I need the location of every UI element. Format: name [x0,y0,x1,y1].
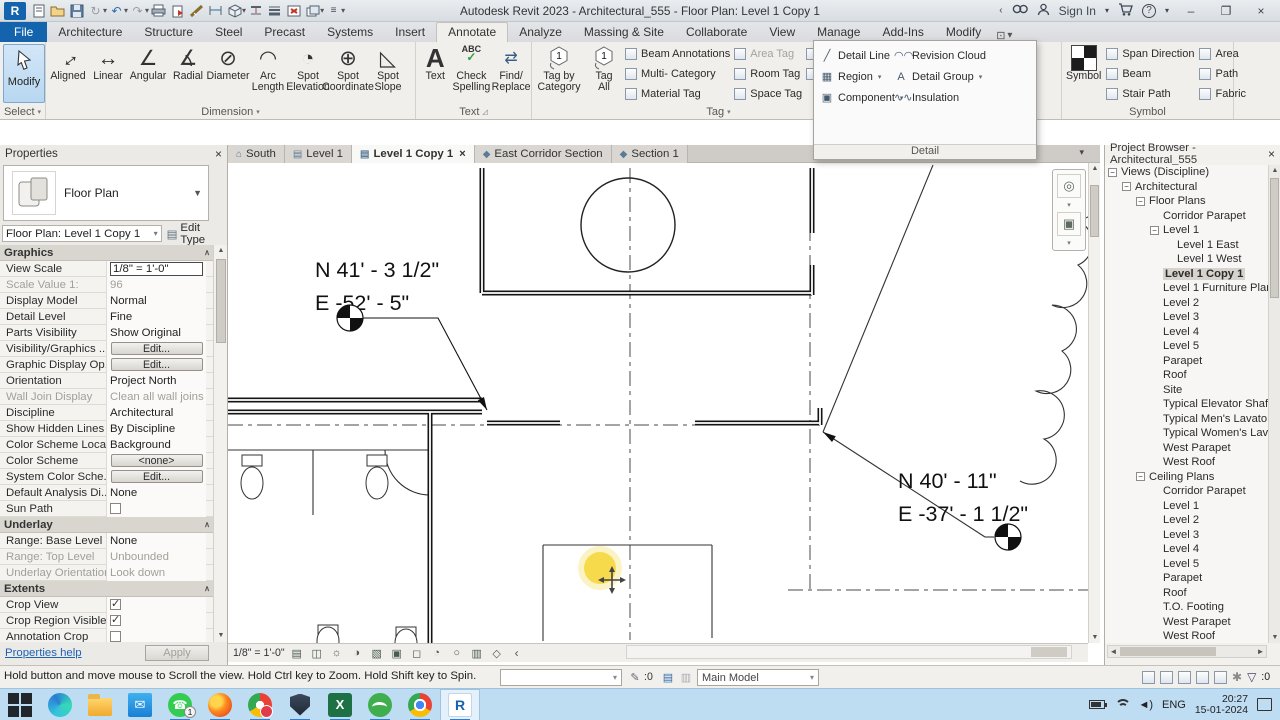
tab-massing-site[interactable]: Massing & Site [573,22,675,42]
symbol-tool-icon [1199,88,1211,100]
scroll-down-icon: ▼ [214,630,228,642]
ribbon-tab-row: File Architecture Structure Steel Precas… [0,22,1280,42]
text-panel: A Text ABC✓ CheckSpelling ⇄ Find/Replace… [416,42,532,119]
radial-dimension-tool[interactable]: ∡ Radial [168,42,208,104]
type-name: Floor Plan [64,186,119,200]
tool-icon: ⊘ [219,45,237,71]
tree-item[interactable]: Parapet [1105,571,1269,586]
tree-item[interactable]: Level 1 [1105,499,1269,514]
material-tag-tool[interactable]: Material Tag [625,84,730,104]
caret-down-icon[interactable]: ▾ [1067,239,1071,247]
project-browser: Project Browser - Architectural_555× − V… [1104,145,1280,665]
wifi-icon[interactable] [1114,699,1129,711]
design-option-selector[interactable]: Main Model▾ [697,669,819,686]
view-type-icon: ▤ [293,149,302,160]
floor-plan-type-icon [12,171,56,215]
caret-down-icon[interactable]: ▾ [979,73,983,81]
tree-item[interactable]: Level 4 [1105,325,1269,340]
floor-plan-drawing[interactable]: N 41' - 3 1/2" E -52' - 5" N 40' - 11" E… [228,163,1088,643]
detail-line-tool[interactable]: ╱ Detail Line [820,45,903,66]
scroll-right-icon: ► [1255,646,1266,657]
project-browser-title: Project Browser - Architectural_555 [1110,142,1268,166]
tree-item[interactable]: Level 5 [1105,339,1269,354]
mail-app[interactable]: ✉ [120,689,160,720]
select-underlay-icon[interactable] [1160,671,1173,684]
select-panel: Modify Select▾ [0,42,46,119]
sign-in-label[interactable]: Sign In [1059,4,1096,18]
expand-view-bar-icon[interactable]: ‹ [509,646,525,661]
properties-help-link[interactable]: Properties help [5,647,82,659]
type-selector[interactable]: Floor Plan ▼ [3,165,209,221]
view-tab-section-1[interactable]: ◆ Section 1 [612,145,688,163]
tab-systems[interactable]: Systems [316,22,384,42]
notification-badge: 1 [184,706,196,718]
property-button[interactable]: <none> [111,454,203,467]
sync-icon[interactable]: ↻ [86,1,105,21]
view-scale-button[interactable]: 1/8" = 1'-0" [233,647,285,659]
svg-text:N 40' - 11": N 40' - 11" [898,469,997,493]
whatsapp-app[interactable]: ☎ 1 [160,689,200,720]
property-value[interactable]: Project North [110,375,176,387]
symbol-icon [1071,45,1097,71]
detail-level-icon[interactable]: ▤ [289,646,305,661]
property-checkbox[interactable] [110,503,121,514]
tool-icon: ◔ [302,45,315,71]
tab-precast[interactable]: Precast [253,22,316,42]
app-icon [290,694,310,716]
gear-icon[interactable]: ✱ [1232,670,1242,684]
tree-item[interactable]: Parapet [1105,354,1269,369]
symbol-panel: Symbol Span DirectionBeamStair Path Area… [1062,42,1234,119]
property-row: Graphic Display Op... Edit... [0,357,214,373]
filter-icon[interactable]: ▽ [1247,670,1256,684]
property-checkbox[interactable] [110,631,121,642]
property-button[interactable]: Edit... [111,470,203,483]
redo-icon[interactable]: ↷ [128,1,147,21]
property-row: Underlay Orientation Look down [0,565,214,581]
area-tag-tool[interactable]: Area Tag [734,44,802,64]
property-row: Crop Region Visible [0,613,214,629]
property-value[interactable]: Architectural [110,407,173,419]
spot-coordinate-annotation-2[interactable]: N 40' - 11" E -37' - 1 1/2" [823,432,1028,550]
plumbing-fixtures [241,455,417,643]
tab-analyze[interactable]: Analyze [508,22,573,42]
caret-down-icon: ▾ [154,229,158,238]
collapse-node-icon[interactable]: − [1136,472,1145,481]
zoom-region-icon[interactable]: ▣ [1057,212,1081,236]
find-replace-icon: ⇄ [504,45,517,71]
tab-architecture[interactable]: Architecture [47,22,133,42]
collapse-node-icon[interactable]: − [1108,168,1117,177]
file-explorer-app[interactable] [80,689,120,720]
tray-date: 15-01-2024 [1195,705,1248,716]
tab-file[interactable]: File [0,22,47,42]
collapse-icon[interactable]: ∧ [204,520,210,529]
tag-by-category-tool[interactable]: 1 Tag byCategory [535,42,583,104]
thin-lines-icon[interactable] [265,1,284,21]
property-value[interactable]: Fine [110,311,132,323]
scroll-left-icon: ◄ [1108,646,1119,657]
property-value[interactable]: Clean all wall joins [110,391,204,403]
canvas-horizontal-scrollbar[interactable] [626,645,1072,659]
browser-horizontal-scrollbar[interactable]: ◄ ► [1107,645,1267,658]
tree-item[interactable]: Typical Elevator Shaf [1105,397,1269,412]
title-bar: R ↻▾ ↶▾ ↷▾ ▾ ▾ ≡▾ Autodesk Revit 2023 - … [0,0,1280,22]
revit-app-menu-icon[interactable]: R [4,2,26,20]
tool-icon: ∠ [139,45,158,71]
tree-item[interactable]: West Parapet [1105,615,1269,630]
property-section-header[interactable]: Graphics∧ [0,245,214,261]
dimension-panel: ↔ Aligned ↔ Linear ∠ Angular [46,42,416,119]
firefox-app[interactable] [200,689,240,720]
property-value[interactable]: None [110,487,137,499]
browser-notification-app[interactable] [240,689,280,720]
tag-icon [625,68,637,80]
tree-item[interactable]: Typical Men's Lavato [1105,412,1269,427]
collapse-icon[interactable]: ∧ [204,248,210,257]
tree-item[interactable]: − Level 1 [1105,223,1269,238]
tree-item[interactable]: Level 3 [1105,528,1269,543]
region-tool[interactable]: ▦ Region ▾ [820,66,903,87]
app-icon: ✉ [128,693,152,717]
property-row: Display Model Normal [0,293,214,309]
svg-text:N 41' - 3 1/2": N 41' - 3 1/2" [315,258,439,282]
find-replace-tool[interactable]: ⇄ Find/Replace [491,42,531,104]
angular-dimension-tool[interactable]: ∠ Angular [128,42,168,104]
property-value[interactable]: Look down [110,567,165,579]
select-by-face-icon[interactable] [1196,671,1209,684]
help-caret-icon[interactable]: ▾ [1165,6,1169,15]
tab-view[interactable]: View [758,22,806,42]
tree-item[interactable]: Site [1105,383,1269,398]
tag-icon [734,48,746,60]
property-row: Color Scheme Loca... Background [0,437,214,453]
tool-icon: ⊕ [339,45,357,71]
tab-annotate[interactable]: Annotate [436,22,508,42]
close-hidden-windows-icon[interactable] [284,1,303,21]
property-value[interactable]: Background [110,439,171,451]
modify-button[interactable]: Modify [3,44,45,103]
view-tab-level-1[interactable]: ▤ Level 1 [285,145,352,163]
symbol-tool[interactable]: Symbol [1066,42,1101,104]
svg-text:E -52' - 5": E -52' - 5" [315,291,409,315]
tag-icon [734,88,746,100]
search-icon[interactable] [1012,3,1028,18]
revit-window: R ↻▾ ↶▾ ↷▾ ▾ ▾ ≡▾ Autodesk Revit 2023 - … [0,0,1280,720]
detail-panel-flyout: ╱ Detail Line ▦ Region ▾ ▣ Component ▾ [813,40,1037,160]
temporary-view-properties-icon[interactable]: ▥ [469,646,485,661]
tree-item[interactable]: West Roof [1105,629,1269,643]
walls[interactable] [228,168,820,643]
view-tab-south[interactable]: ⌂ South [228,145,285,163]
notification-center-icon[interactable] [1257,698,1272,711]
caret-down-icon[interactable]: ▾ [878,73,882,81]
span-direction-tool[interactable]: Span Direction [1106,44,1194,64]
property-section-header[interactable]: Underlay∧ [0,517,214,533]
chrome-app[interactable] [400,689,440,720]
save-icon[interactable] [67,1,86,21]
tree-item[interactable]: Level 1 Furniture Plan [1105,281,1269,296]
property-value[interactable]: Show Original [110,327,181,339]
property-value[interactable]: Normal [110,295,147,307]
property-row: Crop View [0,597,214,613]
symbol-tool-icon [1106,88,1118,100]
design-options-icon[interactable]: ▤ [660,670,676,685]
capture-app[interactable] [360,689,400,720]
canvas-vertical-scrollbar[interactable]: ▲ ▼ [1088,163,1100,643]
close-view-icon[interactable]: × [459,148,465,160]
browser-tree: − Views (Discipline) − Architectural − F… [1105,165,1269,643]
tree-item[interactable]: Typical Women's Lav [1105,426,1269,441]
spot-elevation-tool[interactable]: ◔ Spot Elevation [288,42,328,104]
tag-icon [734,68,746,80]
collapse-node-icon[interactable]: − [1122,182,1131,191]
edit-type-icon: ▤ [167,227,178,241]
property-row: Range: Base Level None [0,533,214,549]
apply-button[interactable]: Apply [145,645,209,661]
tree-item[interactable]: Roof [1105,368,1269,383]
diameter-dimension-tool[interactable]: ⊘ Diameter [208,42,248,104]
store-cart-icon[interactable] [1118,3,1133,19]
tray-time: 20:27 [1195,694,1248,705]
help-icon[interactable]: ? [1142,4,1156,18]
tree-item[interactable]: West Parapet [1105,441,1269,456]
steering-wheel-icon[interactable]: ◎ [1057,174,1081,198]
property-checkbox[interactable] [110,599,121,610]
property-value[interactable]: 96 [110,279,123,291]
caret-down-icon[interactable]: ▾ [1067,201,1071,209]
property-section-header[interactable]: Extents∧ [0,581,214,597]
tree-item[interactable]: Level 1 East [1105,238,1269,253]
caret-down-icon: ▾ [810,673,814,682]
tab-insert[interactable]: Insert [384,22,436,42]
displacement-sets-icon[interactable]: ◇ [489,646,505,661]
tree-item[interactable]: − Floor Plans [1105,194,1269,209]
drag-on-selection-icon[interactable] [1214,671,1227,684]
minimize-button[interactable]: – [1178,4,1204,18]
open-icon[interactable] [48,1,67,21]
tree-item[interactable]: Level 2 [1105,296,1269,311]
defender-app[interactable] [280,689,320,720]
edge-app[interactable] [40,689,80,720]
clock[interactable]: 20:27 15-01-2024 [1195,694,1248,716]
svg-text:1: 1 [601,51,607,62]
insulation-tool[interactable]: ∿∿ Insulation [894,87,1014,108]
customize-caret-icon[interactable]: ▾ [341,6,345,15]
tool-icon: ∿∿ [894,91,908,104]
symbol-tool-icon [1199,48,1211,60]
tag-icon [625,48,637,60]
room-tag-tool[interactable]: Room Tag [734,64,802,84]
show-crop-region-icon[interactable]: ◻ [409,646,425,661]
tree-item[interactable]: − Views (Discipline) [1105,165,1269,180]
property-row: Color Scheme <none> [0,453,214,469]
select-panel-label[interactable]: Select▾ [0,105,45,119]
text-tool[interactable]: A Text [419,42,452,104]
multi-category-tag-tool[interactable]: Multi- Category [625,64,730,84]
revision-cloud-tool[interactable]: ◠◠ Revision Cloud [894,45,1014,66]
close-project-browser-icon[interactable]: × [1268,147,1275,161]
tag-all-tool[interactable]: 1 TagAll [587,42,621,104]
tool-icon: ∡ [179,45,198,71]
view-tab-east-corridor-section[interactable]: ◆ East Corridor Section [475,145,612,163]
ribbon: Modify Select▾ ↔ Aligned ↔ Linear [0,42,1280,120]
fabric-symbol-tool[interactable]: Fabric [1199,84,1246,104]
dimension-panel-label[interactable]: Dimension▾ [46,105,415,119]
taskbar: ✉ ☎ 1 [0,688,1280,720]
editable-only-icon[interactable]: ✎ [627,670,643,685]
view-tab-level-1-copy-1[interactable]: ▤ Level 1 Copy 1 × [352,145,475,163]
beam-annotations-tool[interactable]: Beam Annotations [625,44,730,64]
shadows-icon[interactable]: ◑ [349,646,365,661]
panel-launcher-icon: ◿ [482,108,487,116]
show-rendering-dialog-icon[interactable]: ▧ [369,646,385,661]
account-icon[interactable] [1037,3,1050,19]
tree-item[interactable]: Level 3 [1105,310,1269,325]
language-indicator[interactable]: ENG [1162,699,1186,711]
crop-view-icon[interactable]: ▣ [389,646,405,661]
active-only-icon[interactable]: ▥ [678,670,694,685]
tree-item[interactable]: Corridor Parapet [1105,209,1269,224]
reveal-hidden-elements-icon[interactable]: ○ [449,646,465,661]
detail-component-tool[interactable]: ▣ Component ▾ [820,87,903,108]
beam-symbol-tool[interactable]: Beam [1106,64,1194,84]
symbol-panel-label[interactable]: Symbol [1062,105,1233,119]
stair-path-tool[interactable]: Stair Path [1106,84,1194,104]
tree-item[interactable]: T.O. Footing [1105,600,1269,615]
volume-icon[interactable]: ◄) [1138,699,1153,711]
properties-palette: Properties× Floor Plan ▼ Floor Plan: Lev… [0,145,228,665]
sign-in-caret-icon[interactable]: ▾ [1105,6,1109,15]
tree-item[interactable]: Roof [1105,586,1269,601]
symbol-tool-icon [1106,48,1118,60]
restore-button[interactable]: ❐ [1213,4,1239,18]
property-row: System Color Sche... Edit... [0,469,214,485]
collapse-search-icon[interactable]: ‹ [999,5,1002,16]
check-spelling-tool[interactable]: ABC✓ CheckSpelling [452,42,492,104]
property-row: Detail Level Fine [0,309,214,325]
tab-structure[interactable]: Structure [133,22,204,42]
thin-lines [228,165,1088,641]
app-icon [8,693,32,717]
tree-item[interactable]: Level 5 [1105,557,1269,572]
instance-selector[interactable]: Floor Plan: Level 1 Copy 1▾ [2,225,162,242]
type-selector-caret-icon[interactable]: ▼ [193,188,202,198]
tree-item[interactable]: Level 1 West [1105,252,1269,267]
print-icon[interactable] [149,1,168,21]
property-input[interactable]: 1/8" = 1'-0" [110,262,203,276]
property-value[interactable]: By Discipline [110,423,175,435]
status-bar: Hold button and move mouse to Scroll the… [0,665,1280,688]
tree-item[interactable]: Level 2 [1105,513,1269,528]
collapse-icon[interactable]: ∧ [204,584,210,593]
scroll-up-icon: ▲ [214,245,228,257]
property-row: Sun Path [0,501,214,517]
tab-modify[interactable]: Modify [935,22,992,42]
sun-path-icon[interactable]: ☼ [329,646,345,661]
check-spelling-icon: ABC✓ [462,45,482,71]
excel-app[interactable]: X [320,689,360,720]
collapse-node-icon[interactable]: − [1136,197,1145,206]
property-row: Annotation Crop [0,629,214,642]
path-symbol-tool[interactable]: Path [1199,64,1246,84]
property-value[interactable]: Unbounded [110,551,169,563]
tree-item[interactable]: − Architectural [1105,180,1269,195]
scroll-up-icon: ▲ [1089,163,1101,174]
status-hint: Hold button and move mouse to Scroll the… [4,670,476,682]
property-value[interactable]: None [110,535,137,547]
property-button[interactable]: Edit... [111,342,203,355]
browser-vertical-scrollbar[interactable]: ▲ ▼ [1268,165,1280,643]
select-links-icon[interactable] [1142,671,1155,684]
tree-item[interactable]: Level 1 Copy 1 [1105,267,1269,282]
property-button[interactable]: Edit... [111,358,203,371]
text-panel-label[interactable]: Text◿ [416,105,531,119]
recent-documents-icon[interactable] [29,1,48,21]
linear-dimension-tool[interactable]: ↔ Linear [88,42,128,104]
temporary-hide-isolate-icon[interactable]: ◔ [429,646,445,661]
tree-item[interactable]: Corridor Parapet [1105,484,1269,499]
visual-style-icon[interactable]: ◫ [309,646,325,661]
caret-down-icon: ▾ [613,673,617,682]
view-tabs-overflow-icon[interactable]: ▾ [1079,147,1084,158]
edit-type-button[interactable]: ▤Edit Type [167,222,226,246]
spot-coordinate-tool[interactable]: ⊕ Spot Coordinate [328,42,368,104]
view-type-icon: ◆ [620,149,628,160]
tree-item[interactable]: West Roof [1105,455,1269,470]
start-button[interactable] [0,689,40,720]
workset-selector[interactable]: ▾ [500,669,622,686]
measure-icon[interactable] [187,1,206,21]
close-properties-icon[interactable]: × [215,147,222,161]
aligned-dimension-tool[interactable]: ↔ Aligned [48,42,88,104]
select-pinned-icon[interactable] [1178,671,1191,684]
tab-steel[interactable]: Steel [204,22,253,42]
spot-coordinate-annotation-1[interactable]: N 41' - 3 1/2" E -52' - 5" [315,258,487,410]
close-button[interactable]: × [1248,4,1274,18]
revit-app[interactable]: R [440,689,480,720]
view-type-icon: ⌂ [236,149,242,160]
collapse-node-icon[interactable]: − [1150,226,1159,235]
battery-icon[interactable] [1089,700,1105,709]
app-icon [208,693,232,717]
scroll-down-icon: ▼ [1089,632,1101,643]
section-icon[interactable] [246,1,265,21]
tool-icon: ↔ [98,45,119,71]
tab-collaborate[interactable]: Collaborate [675,22,758,42]
tab-add-ins[interactable]: Add-Ins [871,22,934,42]
area-symbol-tool[interactable]: Area [1199,44,1246,64]
property-row: Range: Top Level Unbounded [0,549,214,565]
arc-length-tool[interactable]: ◠ Arc Length [248,42,288,104]
spot-slope-tool[interactable]: ◺ Spot Slope [368,42,408,104]
svg-text:1: 1 [556,51,562,62]
tab-manage[interactable]: Manage [806,22,871,42]
space-tag-tool[interactable]: Space Tag [734,84,802,104]
export-icon[interactable] [168,1,187,21]
tree-item[interactable]: − Ceiling Plans [1105,470,1269,485]
properties-scrollbar[interactable]: ▲▼ [213,245,227,642]
tree-item[interactable]: Level 4 [1105,542,1269,557]
aligned-dimension-icon[interactable] [206,1,225,21]
property-row: Discipline Architectural [0,405,214,421]
app-icon [248,693,272,717]
system-tray: ◄) ENG 20:27 15-01-2024 [1089,694,1280,716]
detail-group-tool[interactable]: A Detail Group ▾ [894,66,1014,87]
property-checkbox[interactable] [110,615,121,626]
detail-panel-label[interactable]: Detail [814,144,1036,159]
round-column[interactable] [581,178,675,272]
